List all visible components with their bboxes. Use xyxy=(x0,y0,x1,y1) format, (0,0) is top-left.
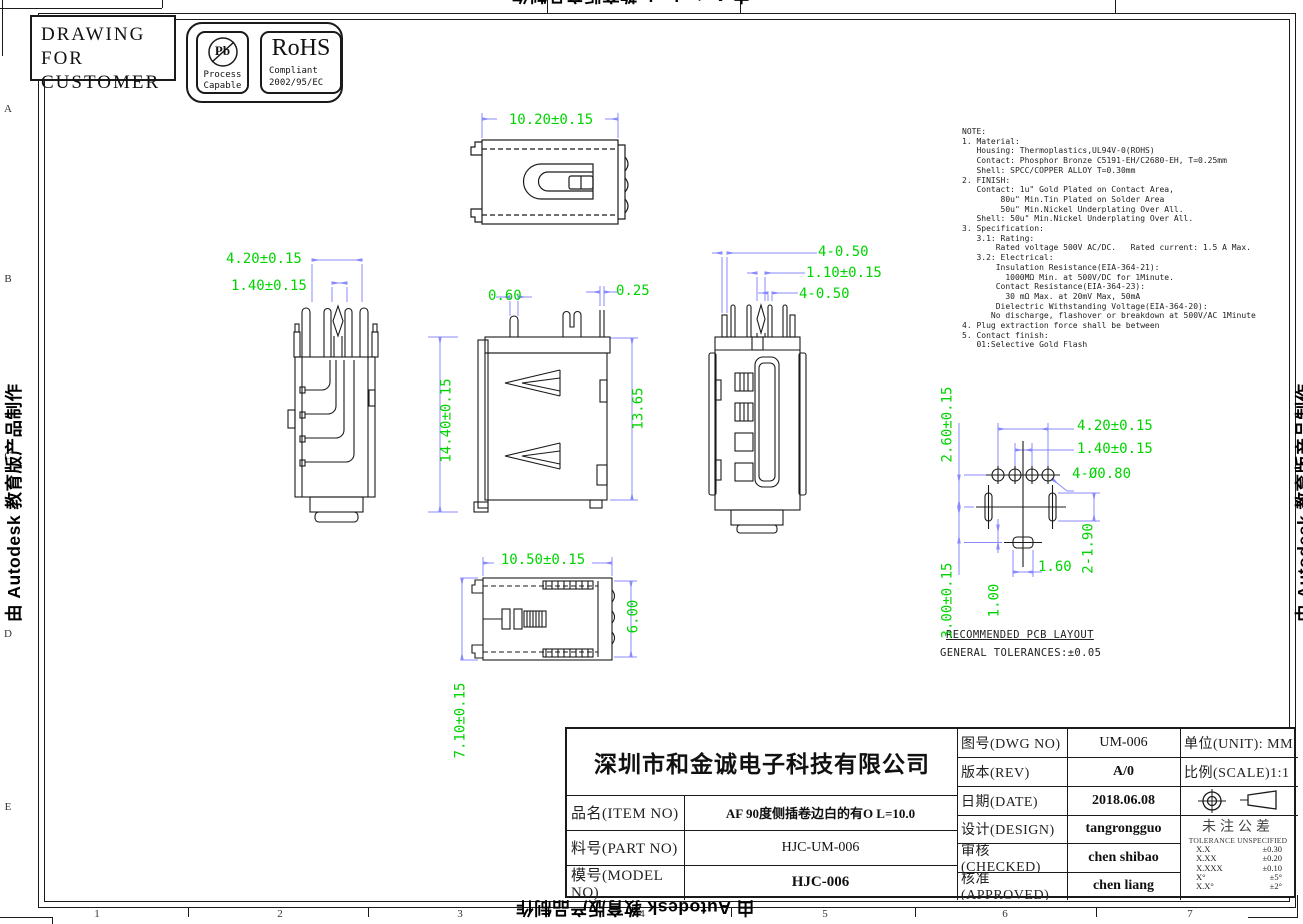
part-outline xyxy=(474,310,610,512)
projection-symbols-cell xyxy=(1180,786,1298,815)
sheet-edge-mark xyxy=(2,0,3,56)
dim-pcb-v2: 3.00±0.15 xyxy=(941,561,956,641)
pb-free-badge: Pb Process Capable xyxy=(196,31,249,94)
pcb-pads xyxy=(976,441,1066,567)
dim-front-pin-width: 0.60 xyxy=(488,289,522,304)
autodesk-watermark-top: 由 Autodesk 教育版产品制作 xyxy=(500,0,762,8)
dim-lines xyxy=(312,260,458,512)
dim-bottom-width: 10.50±0.15 xyxy=(494,553,592,568)
rohs-caption2: 2002/95/EC xyxy=(269,78,323,89)
tolerance-value: ±2° xyxy=(1270,882,1282,891)
dim-lines xyxy=(462,557,637,660)
dim-pcb-pitch: 4.20±0.15 xyxy=(1077,419,1153,434)
dwg-no-value: UM-006 xyxy=(1067,729,1180,757)
rohs-title: RoHS xyxy=(262,35,340,62)
part-no-label: 料号(PART NO) xyxy=(567,830,684,865)
dim-front-height: 13.65 xyxy=(632,384,647,434)
dim-side-pitch: 4.20±0.15 xyxy=(226,252,302,267)
dwg-no-label: 图号(DWG NO) xyxy=(957,729,1067,757)
grid-col-label: 6 xyxy=(998,908,1012,920)
grid-tick xyxy=(1096,908,1097,917)
grid-col-label: 7 xyxy=(1183,908,1197,920)
dim-top-width: 10.20±0.15 xyxy=(497,113,605,128)
title-block: 深圳市和金诚电子科技有限公司 品名(ITEM NO) AF 90度侧插卷边白的有… xyxy=(565,727,1296,898)
item-no-value: AF 90度侧插卷边白的有O L=10.0 xyxy=(684,795,957,830)
drawing-for-customer-line1: DRAWING FOR xyxy=(41,23,174,71)
part-outline xyxy=(471,140,628,224)
pb-symbol: Pb xyxy=(198,43,247,59)
part-outline xyxy=(709,305,806,533)
item-no-label: 品名(ITEM NO) xyxy=(567,795,684,830)
date-label: 日期(DATE) xyxy=(957,786,1067,815)
rev-value: A/0 xyxy=(1067,757,1180,786)
dim-pcb-v3: 1.00 xyxy=(988,583,1003,619)
autodesk-watermark-right: 由 Autodesk 教育版产品制作 xyxy=(1291,312,1303,622)
drawing-for-customer-line2: CUSTOMER xyxy=(41,71,174,95)
dim-rear-2: 1.10±0.15 xyxy=(806,266,882,281)
grid-row-label: E xyxy=(2,801,14,813)
dim-front-pin-width2: 0.25 xyxy=(616,284,650,299)
grid-col-label: 1 xyxy=(90,908,104,920)
unit-cell: 单位(UNIT): MM xyxy=(1180,729,1298,757)
sheet-edge-mark xyxy=(162,0,163,8)
grid-tick xyxy=(368,908,369,917)
view-front xyxy=(450,280,650,520)
tolerance-key: X.X° xyxy=(1196,882,1214,891)
first-angle-projection-icon xyxy=(1198,788,1230,814)
grid-col-label: 2 xyxy=(273,908,287,920)
dim-pcb-v1: 2.60±0.15 xyxy=(941,385,956,465)
part-no-value: HJC-UM-006 xyxy=(684,830,957,865)
dim-pcb-hole: 4-Ø0.80 xyxy=(1072,467,1131,482)
cone-projection-icon xyxy=(1240,790,1280,812)
pb-caption1: Process xyxy=(198,70,247,80)
rohs-badge: RoHS Compliant 2002/95/EC xyxy=(260,31,342,94)
tolerance-row: X.X° ±2° xyxy=(1180,882,1296,891)
scale-cell: 比例(SCALE)1:1 xyxy=(1180,757,1298,786)
dim-pcb-pitch2: 1.40±0.15 xyxy=(1077,442,1153,457)
pb-caption2: Capable xyxy=(198,81,247,91)
grid-tick xyxy=(1115,0,1116,13)
rev-label: 版本(REV) xyxy=(957,757,1067,786)
dim-side-pitch2: 1.40±0.15 xyxy=(231,279,307,294)
grid-row-label: D xyxy=(2,628,14,640)
dim-pcb-slot: 2-1.90 xyxy=(1082,521,1097,577)
drawing-sheet: A B C D E 1 2 3 4 5 6 7 由 Autodesk 教育版产品… xyxy=(0,0,1303,924)
dim-lines xyxy=(712,253,817,313)
dim-pcb-width: 1.60 xyxy=(1038,560,1072,575)
sheet-edge-mark xyxy=(0,917,52,918)
approved-label: 核准(APPROVED) xyxy=(957,872,1067,900)
tolerance-box: 未注公差 TOLERANCE UNSPECIFIED X.X ±0.30 X.X… xyxy=(1180,815,1296,898)
drawing-for-customer-box: DRAWING FOR CUSTOMER xyxy=(30,15,176,81)
grid-row-label: B xyxy=(2,273,14,285)
sheet-edge-mark xyxy=(0,8,162,9)
design-value: tangrongguo xyxy=(1067,815,1180,843)
model-no-value: HJC-006 xyxy=(684,865,957,900)
company-name: 深圳市和金诚电子科技有限公司 xyxy=(567,729,957,795)
grid-tick xyxy=(188,908,189,917)
sheet-edge-mark xyxy=(1248,917,1298,918)
pcb-layout-title: RECOMMENDED PCB LAYOUT xyxy=(946,629,1094,641)
part-outline xyxy=(472,578,615,660)
sheet-edge-mark xyxy=(1297,895,1298,918)
rohs-caption1: Compliant xyxy=(269,66,318,77)
model-no-label: 模号(MODEL NO) xyxy=(567,865,684,900)
part-outline xyxy=(288,306,378,522)
autodesk-watermark-left: 由 Autodesk 教育版产品制作 xyxy=(1,312,21,622)
checked-value: chen shibao xyxy=(1067,843,1180,872)
approved-value: chen liang xyxy=(1067,872,1180,900)
date-value: 2018.06.08 xyxy=(1067,786,1180,815)
grid-col-label: 3 xyxy=(453,908,467,920)
checked-label: 审核(CHECKED) xyxy=(957,843,1067,872)
dim-rear-1: 4-0.50 xyxy=(818,245,869,260)
design-label: 设计(DESIGN) xyxy=(957,815,1067,843)
sheet-edge-mark xyxy=(52,917,53,924)
autodesk-watermark-bottom: 由 Autodesk 教育版产品制作 xyxy=(504,899,766,921)
tolerance-title-cn: 未注公差 xyxy=(1180,816,1296,836)
dim-side-height: 14.40±0.15 xyxy=(440,376,455,466)
dim-bottom-height: 6.00 xyxy=(627,595,642,639)
notes-block: NOTE: 1. Material: Housing: Thermoplasti… xyxy=(962,127,1298,350)
grid-col-label: 5 xyxy=(818,908,832,920)
dim-bottom-depth: 7.10±0.15 xyxy=(454,675,469,767)
grid-row-label: A xyxy=(2,103,14,115)
pcb-general-tolerance: GENERAL TOLERANCES:±0.05 xyxy=(940,647,1101,659)
dim-rear-3: 4-0.50 xyxy=(799,287,850,302)
grid-tick xyxy=(915,908,916,917)
